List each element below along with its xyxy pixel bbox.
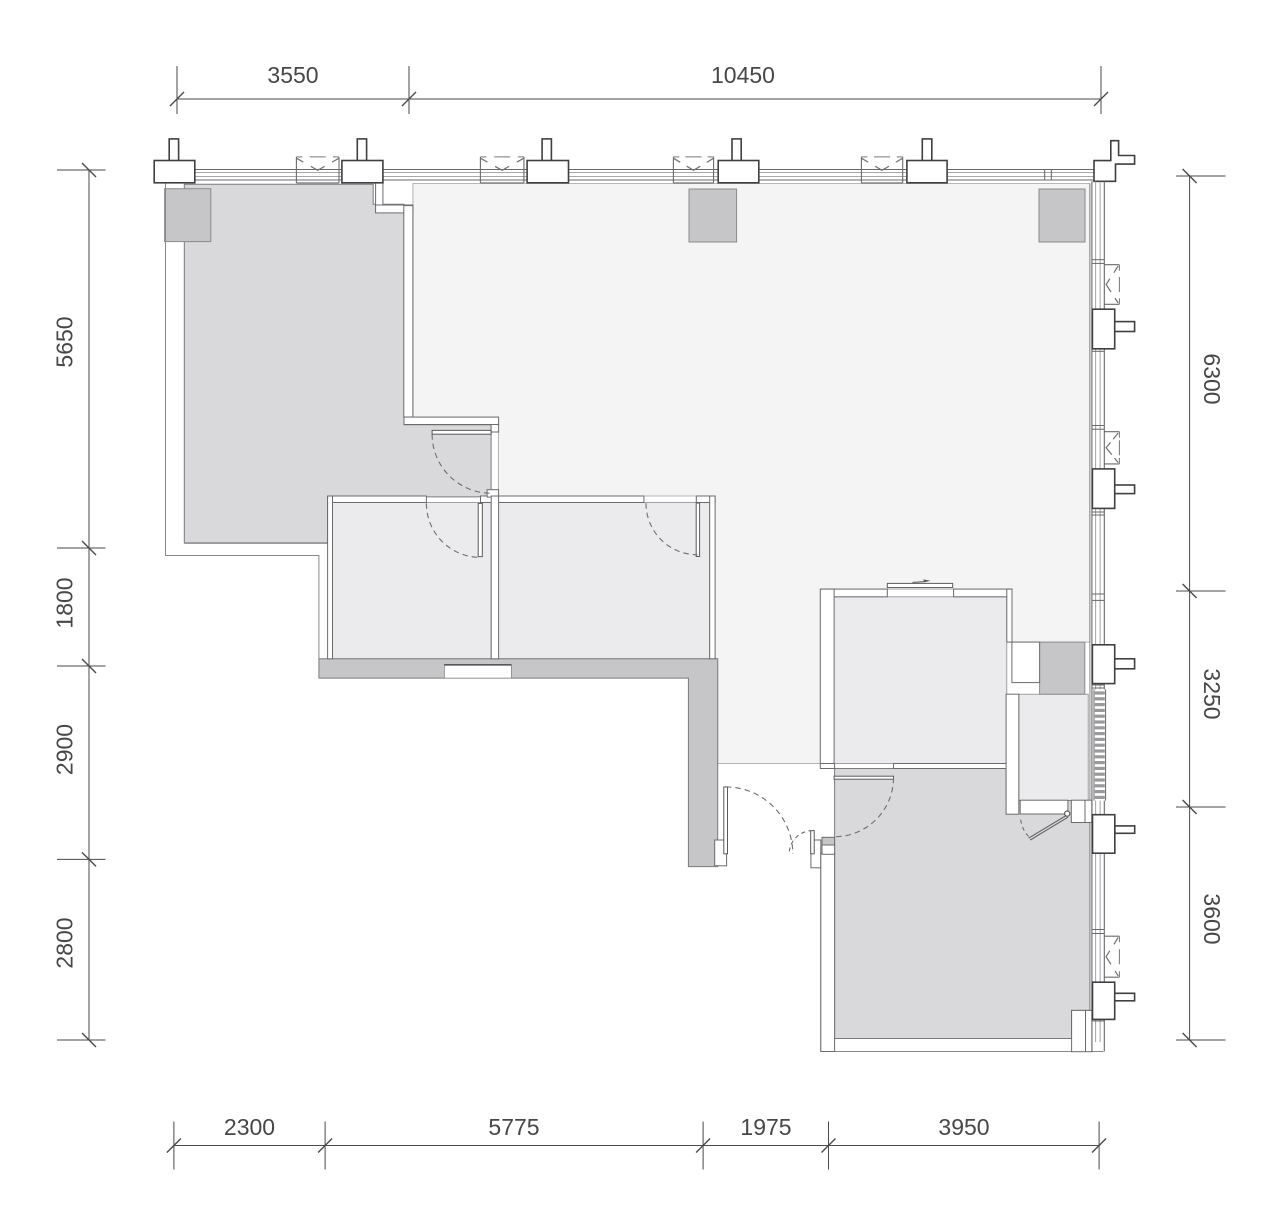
svg-text:3950: 3950 [938, 1114, 989, 1140]
svg-text:2800: 2800 [52, 917, 78, 968]
svg-text:1975: 1975 [740, 1114, 791, 1140]
svg-text:2900: 2900 [52, 724, 78, 775]
svg-text:1800: 1800 [52, 577, 78, 628]
svg-text:5650: 5650 [52, 316, 78, 367]
svg-text:3250: 3250 [1199, 668, 1225, 719]
svg-text:6300: 6300 [1199, 353, 1225, 404]
svg-text:3600: 3600 [1199, 893, 1225, 944]
svg-text:10450: 10450 [711, 62, 775, 88]
svg-text:2300: 2300 [224, 1114, 275, 1140]
svg-text:3550: 3550 [267, 62, 318, 88]
svg-text:5775: 5775 [488, 1114, 539, 1140]
